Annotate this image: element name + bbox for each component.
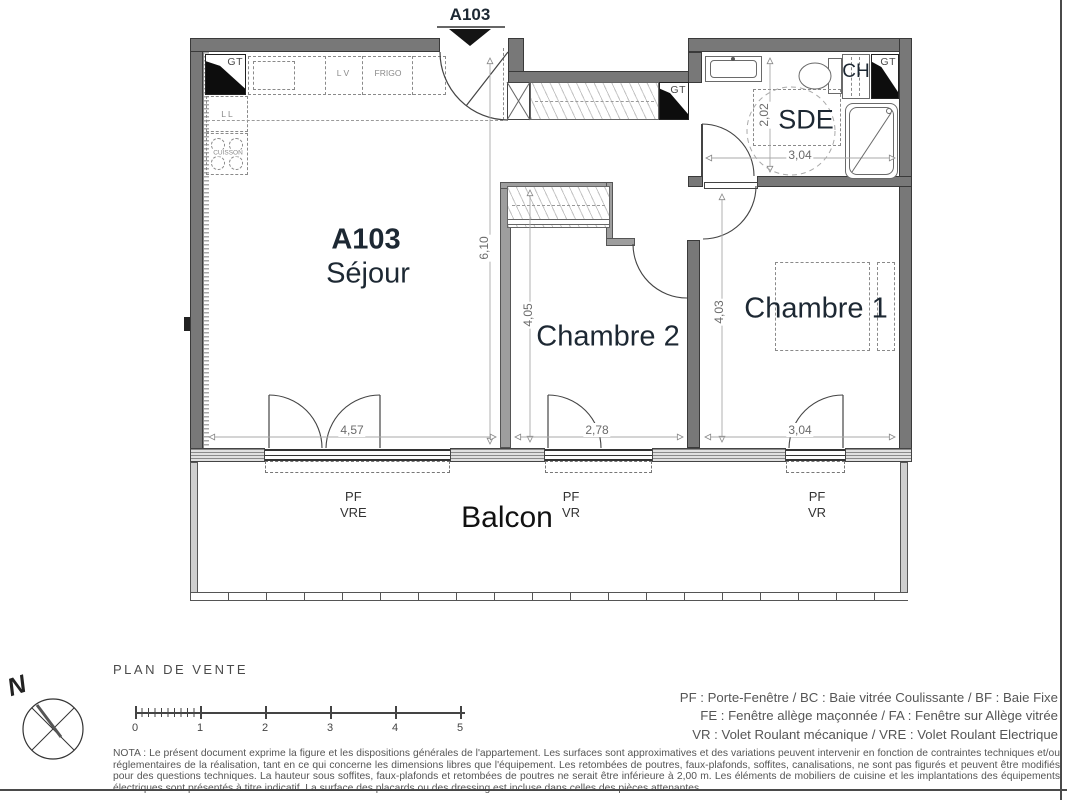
entry-arrow-icon: [449, 29, 491, 46]
scale-tick: [265, 706, 267, 719]
chambre2-wardrobe: [507, 186, 610, 228]
french-door-arc: [789, 395, 843, 448]
scale-bar-subdivisions: [135, 708, 200, 717]
balcon-label: Balcon: [461, 501, 553, 535]
sill-wall: [450, 448, 545, 462]
compass-needle: [37, 705, 61, 737]
sde-label: SDE: [778, 105, 834, 136]
balcony-railing: [190, 592, 908, 601]
kitchen-divider: [325, 56, 326, 95]
dim-sejour-height: 6,10: [477, 234, 491, 261]
closet-rail-line: [535, 101, 654, 102]
dim-sde-width: 3,04: [786, 148, 813, 162]
shutter-type: VRE: [340, 505, 367, 521]
dim-chambre1-height: 4,03: [712, 298, 726, 325]
compass-icon: [23, 699, 83, 759]
french-door-arc: [326, 395, 380, 448]
scale-number: 2: [262, 722, 268, 734]
chambre1-door-leaf: [704, 182, 758, 189]
window-label-chambre1: PF VR: [808, 489, 826, 521]
dim-sde-height: 2,02: [757, 101, 771, 128]
wall-sde-left-stub: [688, 52, 702, 83]
kitchen-zone-dashed-line: [207, 120, 503, 121]
floor-plan-page: GT L V FRIGO L L CUISSON GT GT: [0, 0, 1067, 800]
window-type: PF: [562, 489, 580, 505]
burner-icon: [229, 156, 243, 170]
frigo-label: FRIGO: [375, 68, 402, 78]
gt-box-sde: GT: [871, 54, 899, 99]
sde-door-arc: [702, 124, 754, 176]
chambre1-door-arc: [703, 186, 756, 239]
window-chambre1: [786, 449, 845, 461]
sill-wall: [190, 448, 265, 462]
dim-chambre2-height: 4,05: [521, 301, 535, 328]
wall-left-exterior-mark: [184, 317, 190, 331]
gt-label: GT: [227, 56, 243, 68]
window-type: PF: [808, 489, 826, 505]
nota-paragraph: NOTA : Le présent document exprime la fi…: [113, 748, 1060, 794]
dim-sejour-width: 4,57: [338, 423, 365, 437]
window-label-chambre2: PF VR: [562, 489, 580, 521]
shutter-type: VR: [562, 505, 580, 521]
chambre2-door-arc: [633, 244, 687, 298]
chambre2-label: Chambre 2: [536, 321, 679, 354]
scale-number: 4: [392, 722, 398, 734]
compass-north-label: N: [4, 670, 30, 703]
ch-label: CH: [842, 61, 869, 83]
sejour-code-label: A103: [331, 224, 400, 257]
threshold-chambre1: [786, 461, 845, 473]
dim-chambre2-width: 2,78: [583, 423, 610, 437]
scale-number: 5: [457, 722, 463, 734]
page-border-right: [1060, 0, 1062, 800]
ll-label: L L: [221, 109, 233, 119]
gt-label: GT: [670, 84, 686, 96]
abbreviation-legend: PF : Porte-Fenêtre / BC : Baie vitrée Co…: [680, 689, 1058, 744]
window-sejour: [265, 449, 450, 461]
wc-bowl: [799, 63, 831, 89]
page-border-bottom: [0, 789, 1067, 791]
closet-rail-line: [512, 205, 605, 206]
gt-box-kitchen: GT: [205, 54, 246, 95]
sejour-label: Séjour: [326, 258, 410, 291]
scale-bar: 0 1 2 3 4 5: [125, 698, 475, 738]
window-chambre2: [545, 449, 652, 461]
kitchen-divider: [412, 56, 413, 95]
dim-chambre1-width: 3,04: [786, 423, 813, 437]
wall-sde-bottom-stub: [688, 176, 703, 187]
chambre1-label: Chambre 1: [744, 293, 887, 326]
scale-number: 1: [197, 722, 203, 734]
entry-door-arc: [440, 52, 508, 120]
wall-left: [190, 38, 203, 462]
threshold-sejour: [265, 461, 450, 473]
scale-tick: [200, 706, 202, 719]
threshold-chambre2: [545, 461, 652, 473]
wardrobe-shelf: [508, 219, 609, 225]
sink-basin: [710, 60, 757, 78]
wall-top-left: [190, 38, 440, 52]
entry-marker-label: A103: [450, 5, 491, 25]
wall-right: [899, 38, 912, 462]
plan-title: PLAN DE VENTE: [113, 662, 248, 677]
french-door-arc: [548, 395, 601, 448]
entry-door-leaf: [466, 52, 508, 106]
abbreviation-line: VR : Volet Roulant mécanique / VRE : Vol…: [680, 726, 1058, 744]
shutter-type: VR: [808, 505, 826, 521]
hall-zone-dashed-line: [503, 48, 504, 120]
compass-cross-line: [32, 708, 74, 750]
abbreviation-line: PF : Porte-Fenêtre / BC : Baie vitrée Co…: [680, 689, 1058, 707]
gt-box-hall: GT: [659, 82, 689, 120]
window-label-sejour: PF VRE: [340, 489, 367, 521]
sink-faucet-icon: [731, 57, 735, 61]
compass-cross-line: [32, 708, 74, 750]
hall-cupboard: [507, 82, 530, 120]
balcony-wall-left: [190, 462, 198, 599]
scale-tick: [330, 706, 332, 719]
french-door-arc: [269, 395, 322, 448]
abbreviation-line: FE : Fenêtre allège maçonnée / FA : Fenê…: [680, 707, 1058, 725]
scale-tick: [395, 706, 397, 719]
scale-tick: [135, 706, 137, 719]
wall-sde-top: [688, 38, 912, 52]
lv-label: L V: [337, 68, 349, 78]
window-type: PF: [340, 489, 367, 505]
scale-number: 3: [327, 722, 333, 734]
wall-chambre1-chambre2: [687, 240, 700, 448]
kitchen-divider: [362, 56, 363, 95]
shower-tray-inner: [849, 107, 894, 175]
balcony-wall-right: [900, 462, 908, 599]
wall-chambre2-step-h: [606, 238, 635, 246]
cuisson-label: CUISSON: [212, 150, 244, 157]
sill-wall: [652, 448, 786, 462]
scale-number: 0: [132, 722, 138, 734]
burner-icon: [211, 156, 225, 170]
scale-tick: [460, 706, 462, 719]
kitchen-sink-unit: [253, 61, 295, 90]
hall-closet: [530, 82, 659, 120]
gt-label: GT: [880, 56, 896, 68]
sill-wall: [845, 448, 912, 462]
